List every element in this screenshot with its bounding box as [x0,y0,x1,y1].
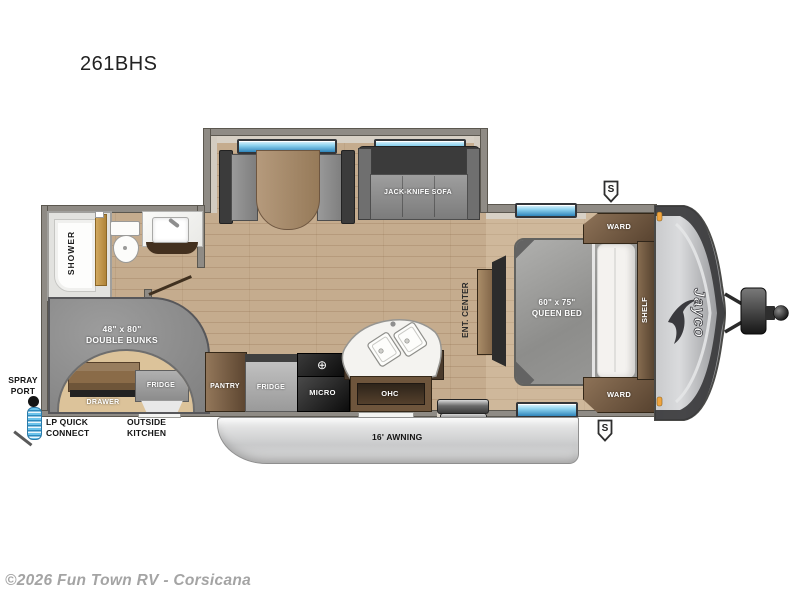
bunks-size-label: 48" x 80" [60,325,184,334]
lp-quick-connect-label-2: CONNECT [46,428,89,439]
outside-fridge-label: FRIDGE [135,381,187,390]
outside-drawer-label: DRAWER [70,398,136,407]
outside-kitchen-label-2: KITCHEN [127,428,166,439]
ent-center-label: ENT. CENTER [461,265,473,355]
outside-kitchen-label-1: OUTSIDE [127,417,166,428]
microwave-label: MICRO [297,388,348,397]
spray-port-label-2: PORT [2,386,44,397]
fridge-label: FRIDGE [245,383,297,392]
awning-label: 16' AWNING [372,432,422,443]
toilet-tank [110,221,140,236]
wall-slide-left [203,128,211,213]
bed-pillow-seam [614,248,616,372]
sofa-back [358,146,480,176]
bedroom-window-bottom [516,402,578,418]
ent-center-tv [492,253,506,369]
floorplan: JACK-KNIFE SOFA SHOWER 48" x 80" DOUBLE … [0,0,800,600]
ohc-label: OHC [350,389,430,398]
front-cap: Jayco [648,198,800,430]
toilet-drain [123,246,127,250]
speaker-letter-bottom: S [602,423,609,434]
spray-port-label-1: SPRAY [2,375,44,386]
shower-hinge [95,211,104,218]
wall-slide-top [203,128,488,136]
dinette-bench-back-right [341,150,355,224]
dinette-bench-left [231,154,258,221]
sofa-label: JACK-KNIFE SOFA [366,188,470,197]
propane-tanks [741,288,766,334]
watermark: ©2026 Fun Town RV - Corsicana [5,572,251,590]
wall-slide-right [480,128,488,213]
floorplan-page: 261BHS [0,0,800,600]
outside-drawer-slot [70,390,136,397]
queen-bed: 60" x 75" QUEEN BED [514,238,642,386]
outside-drawer-box [68,362,140,392]
bed-pillow [597,244,635,378]
bed-corner-2 [514,362,534,386]
lp-quick-connect-label-1: LP QUICK [46,417,88,428]
dinette-table [256,150,320,230]
bed-corner-1 [514,238,534,258]
outside-fridge-door [138,400,186,412]
burner-icon: ⊕ [317,358,327,372]
hitch-ball [774,306,789,321]
speaker-icon-bottom: S [597,419,613,442]
bunks-name-label: DOUBLE BUNKS [60,336,184,345]
entry-step-1 [437,399,489,414]
wardrobe-top-label: WARD [583,222,655,231]
wardrobe-bottom-label: WARD [583,390,655,399]
shower-label: SHOWER [67,213,79,293]
shower-door [95,214,107,286]
lp-hose-coil [27,407,42,440]
speaker-letter-top: S [608,184,615,195]
fridge-top-band [245,354,297,362]
bath-vanity-front [146,242,198,254]
bed-size-label: 60" x 75" [520,298,594,307]
speaker-icon-top: S [603,180,619,203]
sofa-arm-right [466,148,480,220]
marker-light-bottom [657,397,662,406]
pantry-label: PANTRY [205,382,245,391]
bedroom-window-top [515,203,577,218]
brand-logo-text: Jayco [690,288,707,338]
slideout-lining-left [210,135,217,213]
kitchen-sink [336,314,448,384]
sofa-seat [370,174,468,220]
bed-name-label: QUEEN BED [520,309,594,318]
dinette-bench-right [317,154,344,221]
marker-light-top [657,212,662,221]
spray-port-dot [28,396,39,407]
